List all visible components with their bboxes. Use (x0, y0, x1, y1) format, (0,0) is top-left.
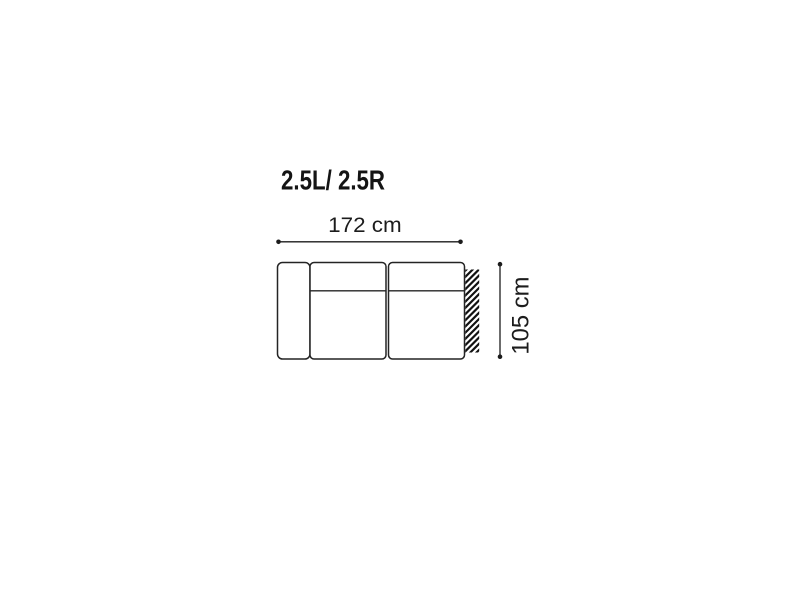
svg-text:2.5L/ 2.5R: 2.5L/ 2.5R (281, 165, 385, 196)
svg-text:105 cm: 105 cm (507, 277, 534, 355)
svg-text:172 cm: 172 cm (328, 212, 402, 237)
